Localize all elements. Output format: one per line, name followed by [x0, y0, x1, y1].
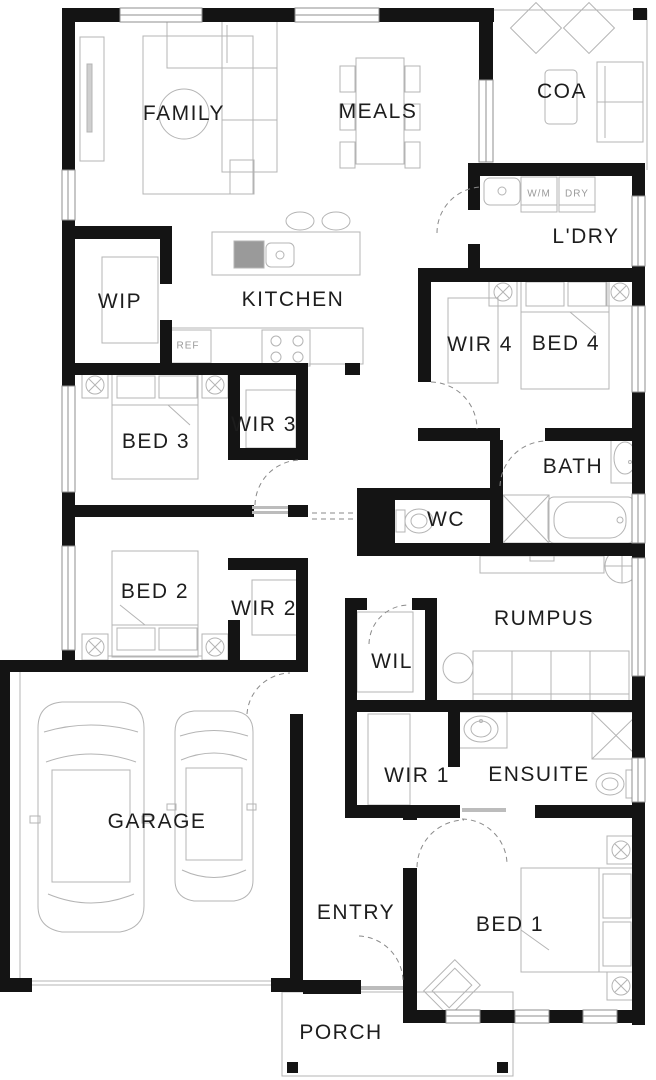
room-label-wir2: WIR 2 — [231, 597, 297, 621]
room-label-meals: MEALS — [339, 100, 418, 124]
room-label-bed4: BED 4 — [532, 332, 600, 356]
room-label-bed2: BED 2 — [121, 580, 189, 604]
room-label-rumpus: RUMPUS — [494, 607, 594, 631]
room-label-ldry: L'DRY — [552, 225, 619, 249]
appliance-label-wm: W/M — [527, 189, 551, 200]
room-label-wc: WC — [427, 508, 465, 532]
room-label-ensuite: ENSUITE — [488, 763, 590, 787]
appliance-label-dry: DRY — [565, 189, 589, 200]
room-label-wip: WIP — [98, 290, 142, 314]
windows — [62, 8, 645, 1023]
room-label-bed1: BED 1 — [476, 913, 544, 937]
room-label-family: FAMILY — [143, 102, 225, 126]
room-label-wil: WIL — [371, 650, 413, 674]
room-label-porch: PORCH — [299, 1021, 382, 1045]
room-label-garage: GARAGE — [108, 810, 207, 834]
room-label-bed3: BED 3 — [122, 430, 190, 454]
room-label-bath: BATH — [543, 455, 603, 479]
room-label-wir4: WIR 4 — [447, 333, 513, 357]
floor-plan: FAMILY MEALS COA L'DRY W/M DRY WIP KITCH… — [0, 0, 656, 1080]
room-label-entry: ENTRY — [317, 901, 395, 925]
appliance-label-ref: REF — [177, 341, 200, 352]
room-label-kitchen: KITCHEN — [242, 288, 345, 312]
room-label-wir3: WIR 3 — [231, 413, 297, 437]
room-label-coa: COA — [537, 80, 587, 104]
room-label-wir1: WIR 1 — [384, 764, 450, 788]
